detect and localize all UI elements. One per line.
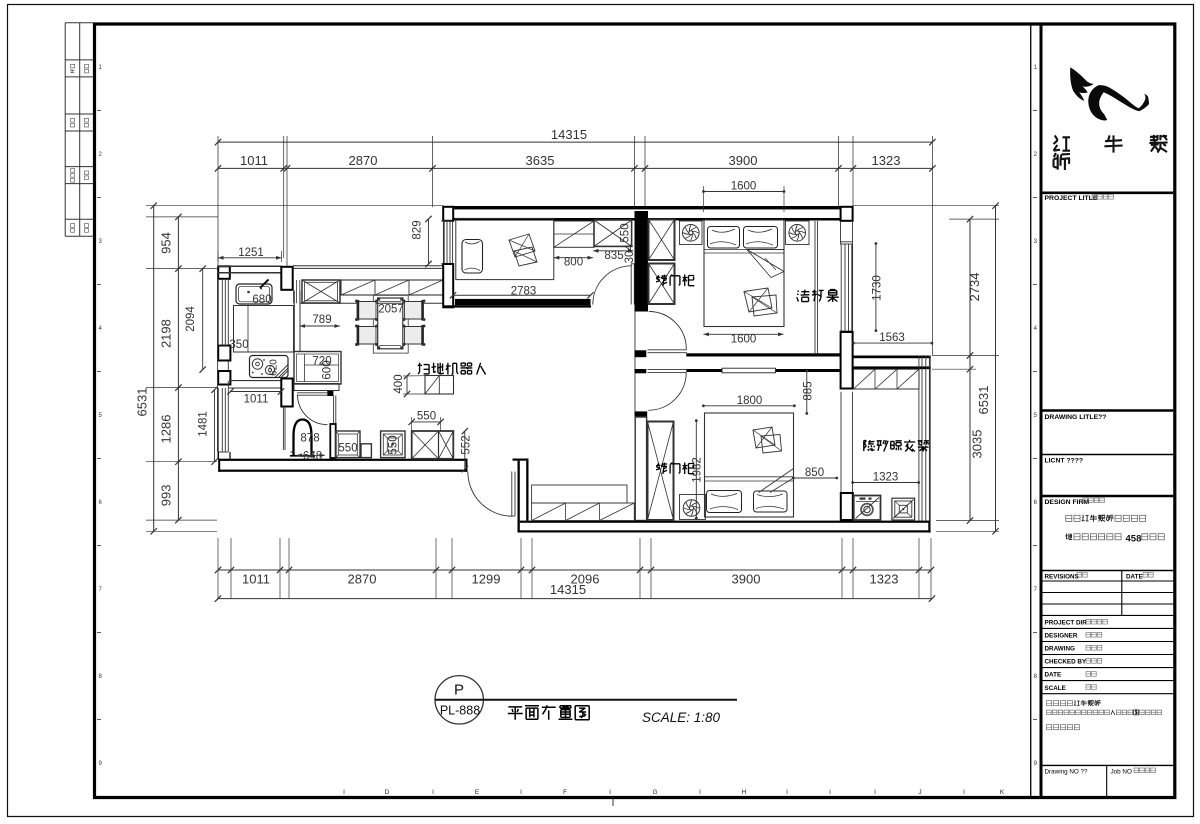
svg-text:I: I <box>699 789 701 796</box>
svg-text:1323: 1323 <box>873 472 899 484</box>
svg-text:550: 550 <box>338 443 357 455</box>
svg-text:DRAWING LITLE??: DRAWING LITLE?? <box>1045 414 1107 421</box>
svg-text:I: I <box>609 789 611 796</box>
svg-text:G: G <box>652 789 657 796</box>
svg-text:400: 400 <box>393 374 405 393</box>
svg-text:350: 350 <box>229 339 248 351</box>
svg-text:REVISIONS: REVISIONS <box>1045 574 1079 581</box>
svg-text:1286: 1286 <box>159 415 174 444</box>
svg-text:D: D <box>385 789 390 796</box>
svg-text:H: H <box>742 789 747 796</box>
svg-text:2057: 2057 <box>378 304 404 316</box>
svg-text:550: 550 <box>417 411 436 423</box>
svg-text:1600: 1600 <box>731 181 757 193</box>
svg-text:PROJECT DIR: PROJECT DIR <box>1045 620 1088 627</box>
svg-text:552: 552 <box>461 435 473 454</box>
svg-text:SCALE: SCALE <box>1045 685 1066 692</box>
svg-text:K: K <box>1000 789 1005 796</box>
svg-text:DATE: DATE <box>1045 672 1062 679</box>
svg-text:304: 304 <box>624 244 636 264</box>
svg-text:1800: 1800 <box>737 395 763 407</box>
svg-text:LICNT ????: LICNT ???? <box>1045 458 1084 465</box>
svg-text:DESIGN FIRM: DESIGN FIRM <box>1045 499 1090 506</box>
svg-text:2094: 2094 <box>185 306 197 332</box>
svg-text:1323: 1323 <box>870 572 899 587</box>
svg-text:835: 835 <box>604 250 623 262</box>
svg-text:F: F <box>563 789 567 796</box>
svg-text:SCALE: 1:80: SCALE: 1:80 <box>642 710 721 725</box>
svg-text:CHECKED BY: CHECKED BY <box>1045 659 1087 666</box>
svg-text:1323: 1323 <box>872 153 901 168</box>
svg-text:550: 550 <box>388 435 400 454</box>
svg-text:I: I <box>432 789 434 796</box>
svg-text:PL-888: PL-888 <box>440 704 480 718</box>
svg-text:3035: 3035 <box>970 430 985 459</box>
svg-text:I: I <box>786 789 788 796</box>
svg-text:1481: 1481 <box>198 411 210 437</box>
svg-text:3900: 3900 <box>729 153 758 168</box>
svg-text:I: I <box>829 789 831 796</box>
svg-text:993: 993 <box>159 485 174 507</box>
svg-text:1251: 1251 <box>238 247 264 259</box>
svg-text:1011: 1011 <box>240 153 268 168</box>
svg-text:3635: 3635 <box>526 153 555 168</box>
svg-text:550: 550 <box>620 223 632 242</box>
svg-text:Drawing NO ??: Drawing NO ?? <box>1045 769 1089 776</box>
svg-text:14315: 14315 <box>551 127 587 142</box>
svg-text:789: 789 <box>312 314 331 326</box>
svg-text:680: 680 <box>252 294 271 306</box>
svg-text:6531: 6531 <box>135 388 150 417</box>
svg-text:1600: 1600 <box>731 334 757 346</box>
svg-text:1299: 1299 <box>472 572 501 587</box>
svg-text:2734: 2734 <box>967 273 982 302</box>
svg-text:458: 458 <box>1126 534 1142 545</box>
svg-text:DRAWING: DRAWING <box>1045 646 1076 653</box>
svg-text:620: 620 <box>269 359 280 376</box>
svg-text:850: 850 <box>805 467 824 479</box>
svg-text:1563: 1563 <box>879 332 905 344</box>
svg-text:1011: 1011 <box>242 572 270 587</box>
svg-text:2783: 2783 <box>511 286 537 298</box>
svg-text:P: P <box>454 682 464 699</box>
svg-text:600: 600 <box>322 360 334 379</box>
svg-text:6531: 6531 <box>976 386 991 415</box>
svg-text:E: E <box>475 789 480 796</box>
svg-text:Job NO: Job NO <box>1111 769 1132 776</box>
svg-text:I: I <box>343 789 345 796</box>
svg-text:DATE: DATE <box>1126 574 1143 581</box>
svg-text:1011: 1011 <box>244 394 269 406</box>
svg-text:954: 954 <box>159 232 174 254</box>
svg-text:1730: 1730 <box>872 275 884 301</box>
svg-text:14315: 14315 <box>550 582 586 597</box>
svg-text:3900: 3900 <box>732 572 761 587</box>
svg-text:J: J <box>918 789 921 796</box>
svg-text:1982: 1982 <box>692 457 704 483</box>
svg-text:PROJECT LITLE: PROJECT LITLE <box>1045 195 1098 202</box>
svg-text:I: I <box>963 789 965 796</box>
svg-text:2870: 2870 <box>349 153 378 168</box>
svg-text:DESIGNER: DESIGNER <box>1045 633 1078 640</box>
svg-text:I: I <box>874 789 876 796</box>
svg-text:800: 800 <box>564 257 583 269</box>
svg-text:I: I <box>520 789 522 796</box>
svg-text:829: 829 <box>412 220 424 239</box>
svg-text:2870: 2870 <box>348 572 377 587</box>
svg-text:878: 878 <box>300 433 319 445</box>
svg-text:648: 648 <box>303 451 322 463</box>
svg-text:885: 885 <box>803 381 815 400</box>
svg-text:2198: 2198 <box>159 319 174 348</box>
